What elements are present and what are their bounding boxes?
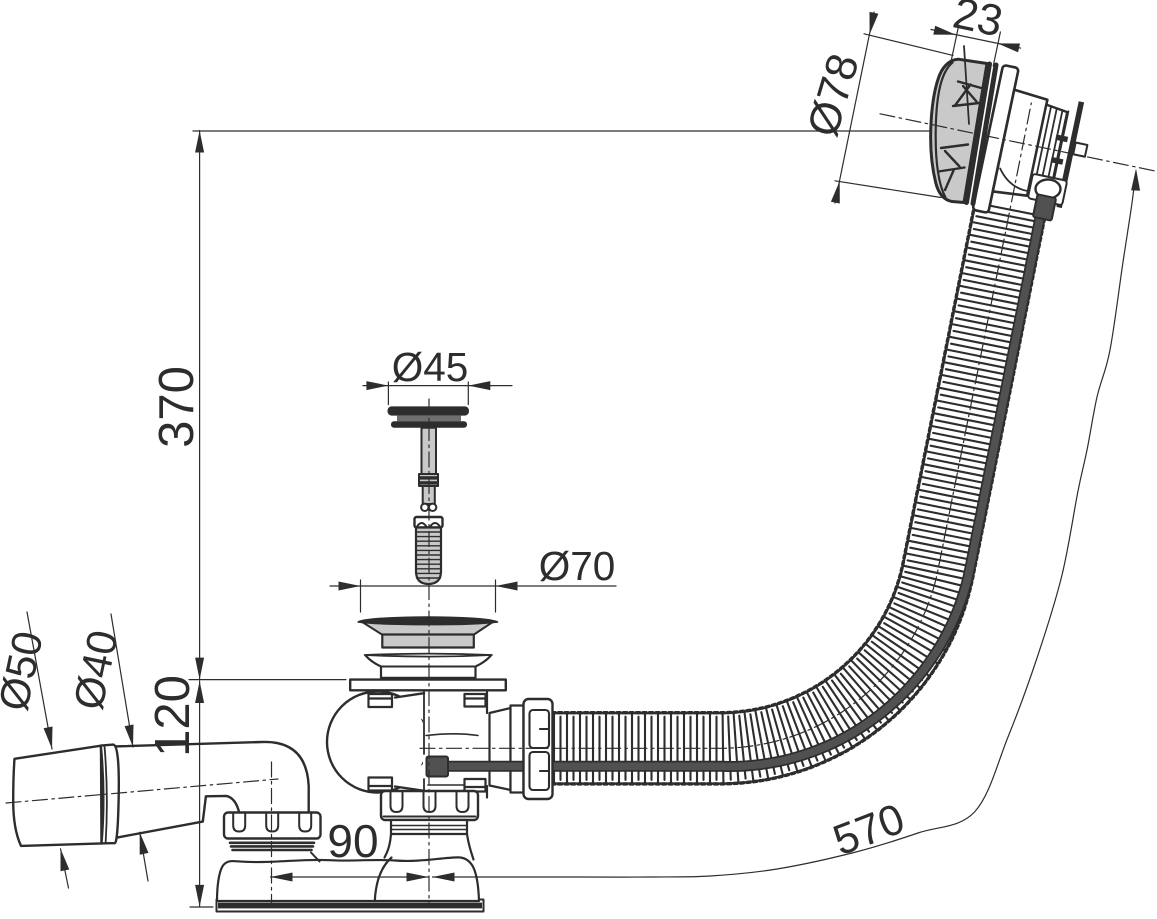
svg-text:Ø45: Ø45 bbox=[392, 344, 469, 390]
svg-text:90: 90 bbox=[327, 815, 378, 867]
svg-text:120: 120 bbox=[146, 675, 200, 757]
svg-text:370: 370 bbox=[150, 366, 204, 448]
svg-text:Ø70: Ø70 bbox=[539, 543, 616, 589]
